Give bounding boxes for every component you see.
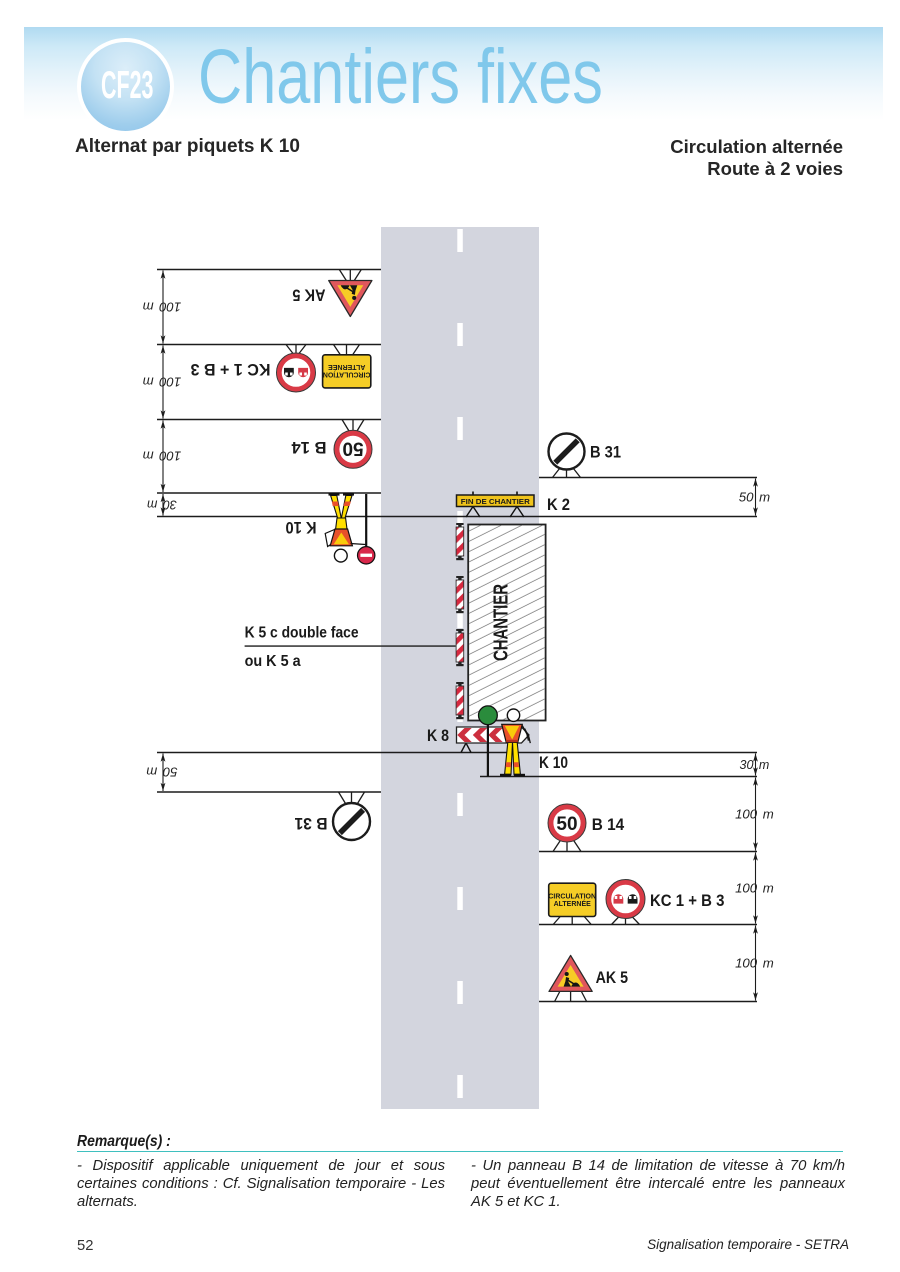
svg-text:KC 1 + B 3: KC 1 + B 3 xyxy=(650,892,724,910)
svg-text:AK 5: AK 5 xyxy=(596,969,628,987)
svg-text:100 m: 100 m xyxy=(143,374,182,389)
svg-text:100 m: 100 m xyxy=(735,807,774,822)
svg-text:B 31: B 31 xyxy=(295,814,328,832)
svg-text:B 14: B 14 xyxy=(592,816,625,834)
svg-text:50 m: 50 m xyxy=(739,490,770,505)
svg-text:B 31: B 31 xyxy=(590,444,621,462)
svg-text:CIRCULATION: CIRCULATION xyxy=(548,894,596,901)
svg-text:K 10: K 10 xyxy=(539,754,568,772)
svg-text:AK 5: AK 5 xyxy=(293,286,326,304)
svg-text:FIN DE CHANTIER: FIN DE CHANTIER xyxy=(461,497,531,506)
svg-text:30 m: 30 m xyxy=(740,758,770,772)
svg-text:ALTERNÉE: ALTERNÉE xyxy=(554,899,592,908)
svg-text:ALTERNÉE: ALTERNÉE xyxy=(328,363,366,372)
svg-text:30 m: 30 m xyxy=(147,498,177,512)
svg-text:100 m: 100 m xyxy=(735,881,774,896)
svg-text:KC 1 + B 3: KC 1 + B 3 xyxy=(191,360,271,378)
svg-text:ou K 5 a: ou K 5 a xyxy=(245,653,301,670)
svg-text:K 5 c double face: K 5 c double face xyxy=(245,625,359,642)
svg-text:100 m: 100 m xyxy=(735,956,774,971)
svg-text:100 m: 100 m xyxy=(143,299,182,314)
svg-text:50: 50 xyxy=(342,437,363,458)
svg-text:K 2: K 2 xyxy=(547,496,570,514)
svg-text:50: 50 xyxy=(556,814,577,835)
svg-text:CHANTIER: CHANTIER xyxy=(490,584,513,661)
svg-text:50 m: 50 m xyxy=(146,765,177,780)
svg-text:K 10: K 10 xyxy=(286,518,317,536)
svg-text:100 m: 100 m xyxy=(143,449,182,464)
svg-text:K 8: K 8 xyxy=(427,727,449,745)
svg-text:B 14: B 14 xyxy=(291,438,327,456)
svg-text:CIRCULATION: CIRCULATION xyxy=(323,371,371,378)
